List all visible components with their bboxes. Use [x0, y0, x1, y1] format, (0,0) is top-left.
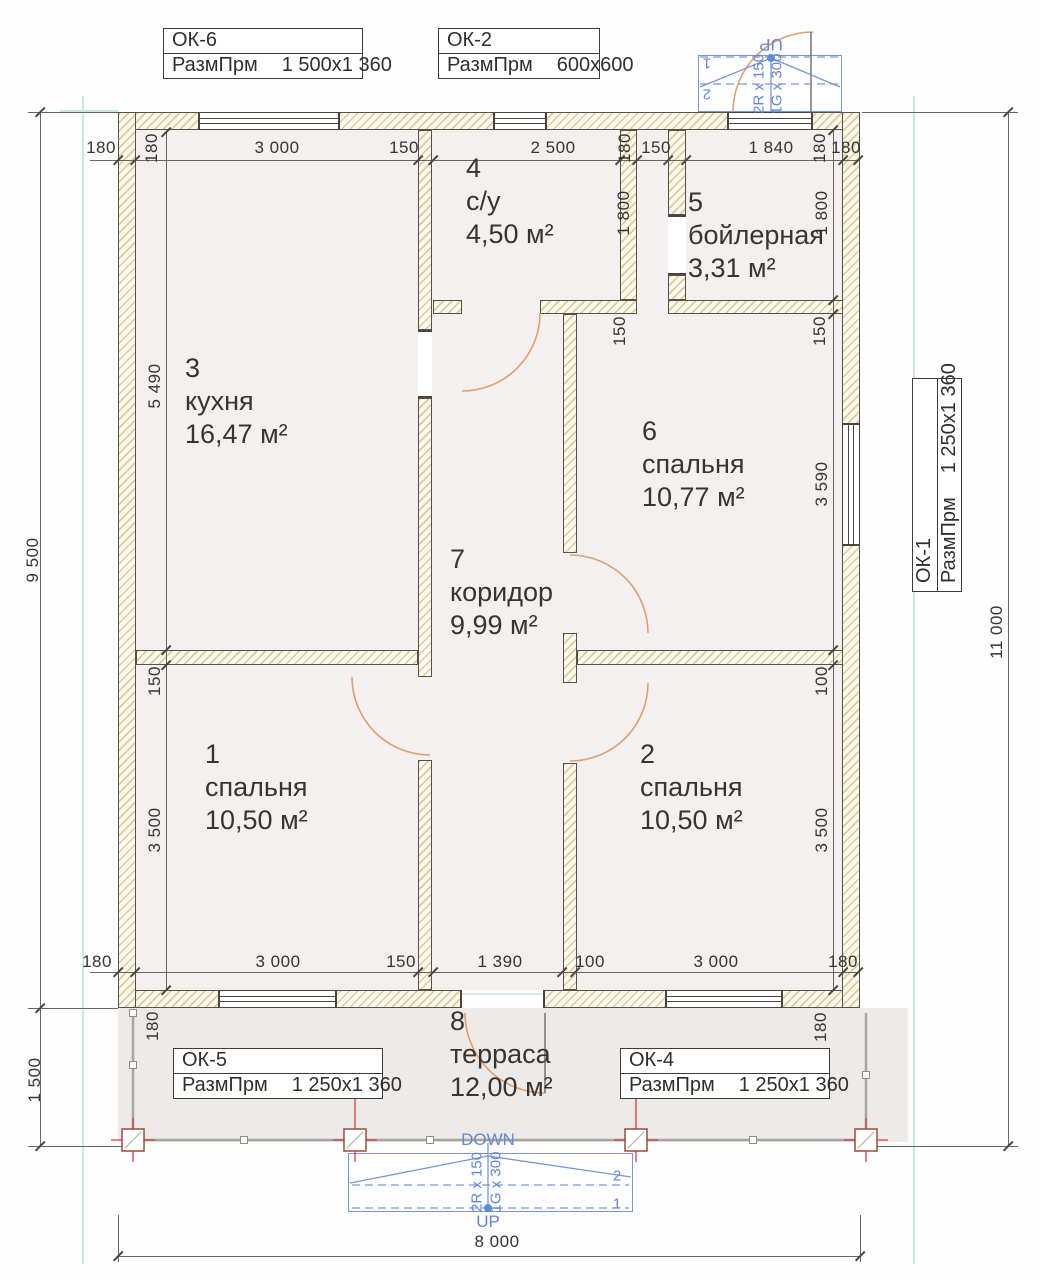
room-area: 4,50 м²	[466, 218, 554, 251]
window-tag-size: 1 250x1 360	[739, 1074, 849, 1096]
window-tag-size: 600x600	[557, 54, 634, 76]
window-tag-id: ОК-6	[164, 29, 362, 54]
stair-step-1-top: 1	[703, 55, 711, 72]
door-arc-bathroom	[462, 313, 540, 391]
dim-label: 2 500	[530, 138, 575, 158]
window-tag-ok1-wrap: ОК-1 РазмПрм1 250x1 360	[912, 378, 962, 592]
dim-label: 1 800	[812, 190, 832, 235]
window-tag-id: ОК-5	[174, 1049, 382, 1074]
room-name: спальня	[642, 448, 745, 481]
dim-label: 180	[86, 138, 116, 158]
room-area: 16,47 м²	[185, 418, 288, 451]
room-label-corridor: 7 коридор 9,99 м²	[450, 543, 553, 642]
dim-label: 11 000	[987, 605, 1007, 659]
window-tag-ok1: ОК-1 РазмПрм1 250x1 360	[912, 378, 962, 592]
window-tag-param: РазмПрм	[629, 1074, 715, 1096]
dim-label: 180	[615, 133, 635, 163]
room-area: 10,50 м²	[640, 804, 743, 837]
stair-step-1: 1	[613, 1196, 621, 1213]
dim-label: 1 840	[748, 138, 793, 158]
room-number: 1	[205, 738, 308, 771]
dim-label: 180	[142, 133, 162, 163]
door-arc-bedroom2	[570, 683, 648, 761]
dim-label: 180	[143, 1011, 163, 1041]
window-tag-size: 1 250x1 360	[938, 363, 960, 473]
window-tag-size: 1 250x1 360	[292, 1074, 402, 1096]
dim-label: 150	[610, 316, 630, 346]
room-number: 5	[688, 186, 824, 219]
window-tag-param: РазмПрм	[172, 54, 258, 76]
dim-label: 3 500	[145, 807, 165, 852]
dim-label: 8 000	[474, 1232, 519, 1252]
dim-label: 150	[386, 952, 416, 972]
dim-label: 100	[812, 666, 832, 696]
dim-label: 150	[641, 138, 671, 158]
room-label-bedroom6: 6 спальня 10,77 м²	[642, 415, 745, 514]
dim-label: 180	[811, 1012, 831, 1042]
dim-label: 3 590	[812, 461, 832, 506]
dim-label: 150	[389, 138, 419, 158]
dim-label: 1 800	[614, 190, 634, 235]
dim-label: 3 000	[254, 138, 299, 158]
room-label-boiler: 5 бойлерная 3,31 м²	[688, 186, 824, 285]
stair-up-label-top: UP	[759, 34, 783, 54]
room-name: коридор	[450, 576, 553, 609]
stair-riser-label-top: 2R x 150	[751, 54, 768, 114]
stair-going-label: 1G x 300	[488, 1152, 505, 1213]
door-arc-bedroom1	[352, 677, 430, 755]
window-tag-ok6: ОК-6 РазмПрм1 500x1 360	[163, 28, 363, 79]
room-area: 10,50 м²	[205, 804, 308, 837]
dim-label: 1 390	[477, 952, 522, 972]
door-arc-bedroom6	[570, 555, 648, 633]
window-tag-size: 1 500x1 360	[282, 54, 392, 76]
room-area: 10,77 м²	[642, 481, 745, 514]
window-tag-id: ОК-1	[913, 379, 938, 591]
window-tag-ok5: ОК-5 РазмПрм1 250x1 360	[173, 1048, 383, 1099]
window-tag-ok4: ОК-4 РазмПрм1 250x1 360	[620, 1048, 830, 1099]
dim-label: 180	[82, 952, 112, 972]
dim-label: 5 490	[145, 363, 165, 408]
room-name: кухня	[185, 385, 288, 418]
room-label-bedroom1: 1 спальня 10,50 м²	[205, 738, 308, 837]
room-number: 3	[185, 352, 288, 385]
dim-label: 100	[575, 952, 605, 972]
floor-plan-canvas: 3 кухня 16,47 м² 4 с/у 4,50 м² 5 бойлерн…	[0, 0, 1040, 1280]
stair-riser-label: 2R x 150	[469, 1152, 486, 1212]
dim-label: 150	[810, 316, 830, 346]
room-number: 7	[450, 543, 553, 576]
room-label-bathroom: 4 с/у 4,50 м²	[466, 152, 554, 251]
room-area: 9,99 м²	[450, 609, 553, 642]
room-name: спальня	[205, 771, 308, 804]
room-label-kitchen: 3 кухня 16,47 м²	[185, 352, 288, 451]
stair-step-2: 2	[613, 1168, 621, 1185]
window-tag-ok2: ОК-2 РазмПрм600x600	[438, 28, 600, 79]
dim-label: 180	[828, 952, 858, 972]
stair-down-label: DOWN	[461, 1130, 515, 1150]
window-tag-param: РазмПрм	[938, 497, 960, 583]
dim-label: 9 500	[23, 537, 43, 582]
dim-label: 3 500	[812, 807, 832, 852]
window-tag-param: РазмПрм	[182, 1074, 268, 1096]
dim-label: 3 000	[693, 952, 738, 972]
room-area: 12,00 м²	[450, 1071, 553, 1104]
room-number: 8	[450, 1005, 553, 1038]
room-name: бойлерная	[688, 219, 824, 252]
window-tag-param: РазмПрм	[447, 54, 533, 76]
stair-step-2-top: 2	[703, 86, 711, 103]
stair-going-label-top: 1G x 300	[769, 54, 786, 115]
room-number: 2	[640, 738, 743, 771]
room-name: терраса	[450, 1038, 553, 1071]
dim-label: 180	[810, 133, 830, 163]
stair-up-label: UP	[476, 1212, 500, 1232]
room-label-bedroom2: 2 спальня 10,50 м²	[640, 738, 743, 837]
room-name: спальня	[640, 771, 743, 804]
dim-label: 3 000	[255, 952, 300, 972]
room-name: с/у	[466, 185, 554, 218]
dim-label: 1 500	[25, 1057, 45, 1102]
room-area: 3,31 м²	[688, 252, 824, 285]
window-tag-id: ОК-2	[439, 29, 599, 54]
dim-label: 150	[145, 666, 165, 696]
room-number: 6	[642, 415, 745, 448]
room-label-terrace: 8 терраса 12,00 м²	[450, 1005, 553, 1104]
dim-label: 180	[831, 138, 861, 158]
window-tag-id: ОК-4	[621, 1049, 829, 1074]
